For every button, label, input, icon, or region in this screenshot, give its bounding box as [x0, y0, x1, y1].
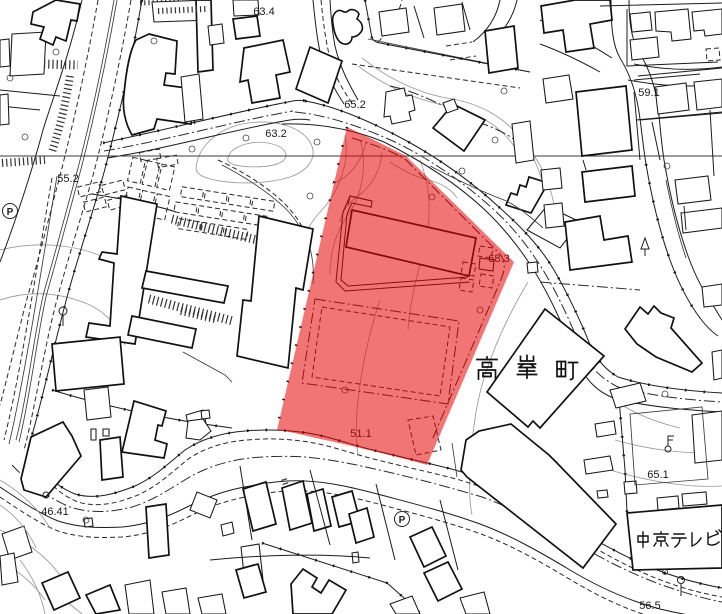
- svg-text:P: P: [7, 207, 14, 218]
- svg-text:65.2: 65.2: [344, 99, 365, 111]
- svg-text:55.2: 55.2: [57, 173, 78, 185]
- svg-text:65.1: 65.1: [647, 469, 668, 481]
- svg-text:P: P: [399, 515, 406, 526]
- svg-text:63.2: 63.2: [265, 128, 286, 140]
- svg-text:59.1: 59.1: [638, 87, 659, 99]
- svg-text:63.4: 63.4: [253, 6, 274, 18]
- svg-text:56.5: 56.5: [639, 600, 660, 612]
- svg-text:46.41: 46.41: [41, 506, 69, 518]
